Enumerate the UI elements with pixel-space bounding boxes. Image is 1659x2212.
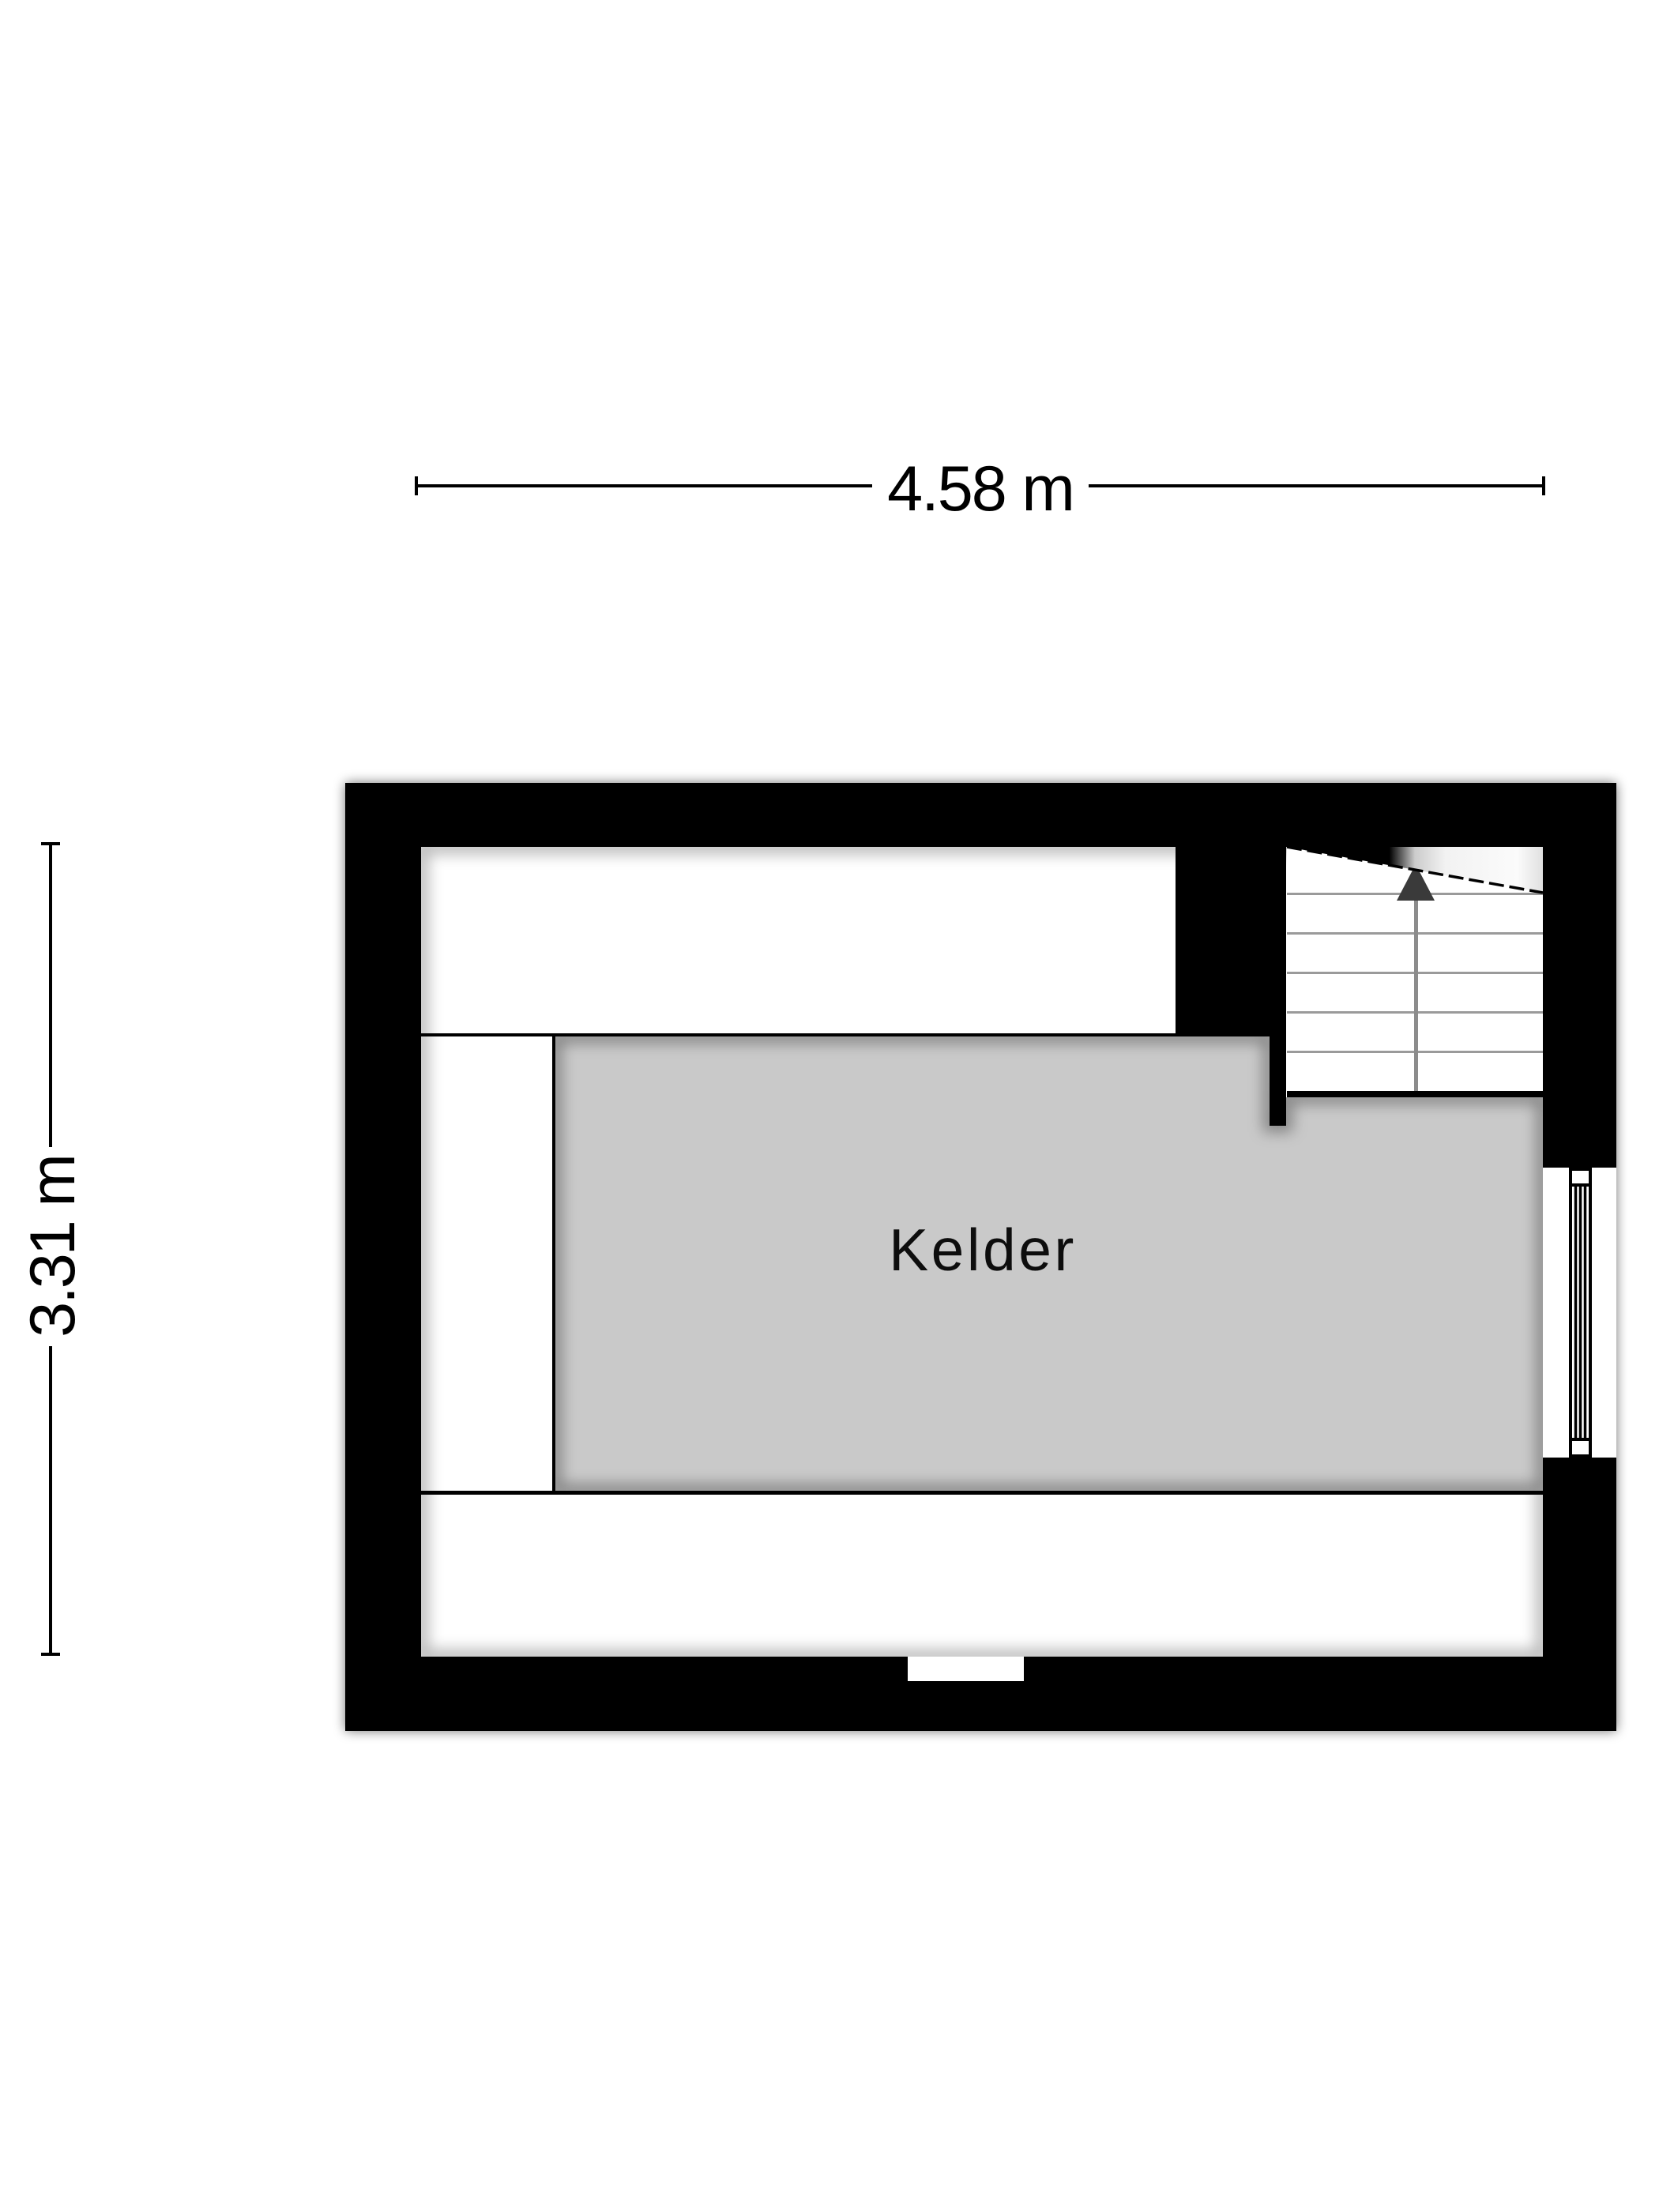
svg-text:3.31 m: 3.31 m — [17, 1156, 88, 1337]
svg-text:Kelder: Kelder — [889, 1217, 1077, 1283]
svg-text:4.58 m: 4.58 m — [887, 453, 1074, 525]
